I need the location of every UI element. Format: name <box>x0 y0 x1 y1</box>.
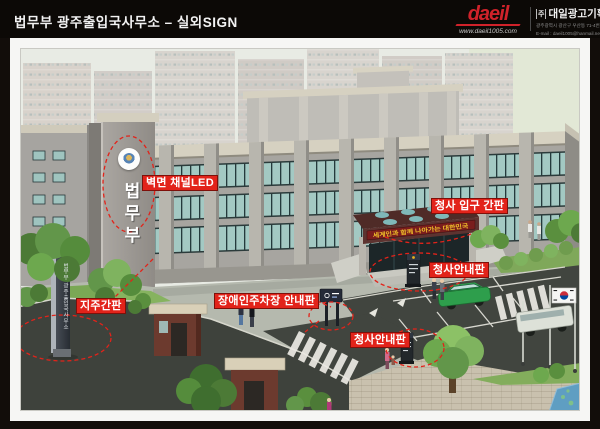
guard-booth <box>149 304 207 356</box>
label-disabled-parking: 장애인주차장 안내판 <box>214 293 319 309</box>
wall-channel-letters: 법무부 <box>119 171 143 259</box>
korean-flag <box>552 288 576 303</box>
company-block: 주대일광고기획 광주광역시 광산구 우산동 71-4번지 / 전 화 : 062… <box>536 6 598 37</box>
company-contact: E-mail : daeil1005@hanmail.net webhard :… <box>536 31 598 37</box>
info-sign-entrance <box>405 254 421 287</box>
label-pylon: 지주간판 <box>76 298 126 314</box>
logo-url: www.daeil1005.com <box>452 28 524 35</box>
label-wall-channel-led: 벽면 채널LED <box>142 175 218 191</box>
label-info-sign-right: 청사안내판 <box>429 262 489 278</box>
page-title: 법무부 광주출입국사무소 – 실외SIGN <box>14 11 238 31</box>
presentation-page: 법무부 광주출입국사무소 – 실외SIGN daeil www.daeil100… <box>0 0 600 429</box>
company-prefix: 주 <box>536 9 546 19</box>
header-bar: 법무부 광주출입국사무소 – 실외SIGN daeil www.daeil100… <box>0 0 600 38</box>
company-logo: daeil www.daeil1005.com <box>452 4 524 35</box>
logo-underline <box>455 24 520 26</box>
pedestrian-bottom <box>327 398 332 411</box>
daeil-logo-text: daeil <box>452 4 524 24</box>
company-name: 주대일광고기획 <box>536 6 598 21</box>
scene-svg: 세계인과 함께 나아가는 대한민국 <box>21 49 580 411</box>
label-entrance-sign: 청사 입구 간판 <box>431 198 508 214</box>
wing-roof <box>21 125 93 133</box>
company-address: 광주광역시 광산구 우산동 71-4번지 / 전 화 : 062-522-100… <box>536 23 598 29</box>
pylon-sign-text: 법무부 광주출입국사무소 <box>58 263 71 347</box>
moj-emblem <box>118 148 140 170</box>
label-info-sign-bottom: 청사안내판 <box>350 332 410 348</box>
company-name-text: 대일광고기획 <box>548 8 600 20</box>
building-rendering: 세계인과 함께 나아가는 대한민국 <box>20 48 580 411</box>
header-divider <box>530 7 531 31</box>
